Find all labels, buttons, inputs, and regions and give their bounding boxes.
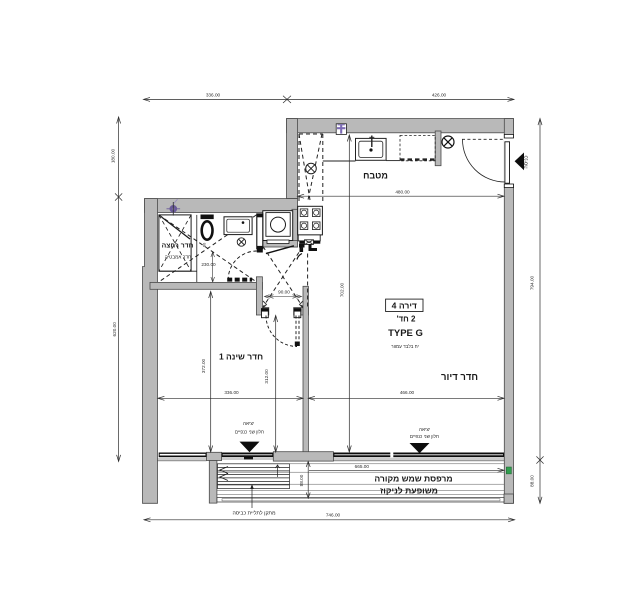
svg-text:2 חד': 2 חד' <box>397 314 416 323</box>
svg-text:480.00: 480.00 <box>395 190 410 195</box>
svg-text:336.00: 336.00 <box>224 390 239 395</box>
svg-text:מתקן לתליית כביסה: מתקן לתליית כביסה <box>232 510 276 517</box>
svg-text:620.00: 620.00 <box>112 322 117 337</box>
svg-text:180.00: 180.00 <box>111 148 116 163</box>
svg-text:מטבח: מטבח <box>363 171 388 181</box>
svg-text:חדר דיור: חדר דיור <box>441 372 478 383</box>
svg-text:יח בלבד עמוור: יח בלבד עמוור <box>391 344 419 349</box>
svg-text:372.00: 372.00 <box>201 358 206 373</box>
svg-text:משופעת לניקוז: משופעת לניקוז <box>380 486 438 496</box>
svg-text:חלון שני כנפיים: חלון שני כנפיים <box>235 430 264 435</box>
svg-text:794.00: 794.00 <box>530 275 535 290</box>
svg-text:יציאה: יציאה <box>419 428 430 433</box>
svg-text:דירה 4: דירה 4 <box>392 301 417 311</box>
svg-text:90.00: 90.00 <box>278 290 290 295</box>
svg-text:312.00: 312.00 <box>264 369 269 384</box>
svg-text:702.00: 702.00 <box>340 282 345 297</box>
svg-text:746.00: 746.00 <box>326 512 341 517</box>
svg-text:מרפסת שמש מקורה: מרפסת שמש מקורה <box>374 474 452 484</box>
svg-text:466.00: 466.00 <box>400 390 415 395</box>
svg-text:665.00: 665.00 <box>355 464 370 469</box>
svg-text:חלון שני כנפיים: חלון שני כנפיים <box>410 434 439 439</box>
svg-text:230.00: 230.00 <box>201 262 216 267</box>
svg-text:חדר אמבטיה: חדר אמבטיה <box>165 256 191 261</box>
svg-text:426.00: 426.00 <box>432 92 447 97</box>
svg-text:80: 80 <box>202 242 207 247</box>
svg-text:חדר שינה 1: חדר שינה 1 <box>219 352 263 362</box>
svg-text:חדר רחצה: חדר רחצה <box>162 243 194 250</box>
svg-text:TYPE G: TYPE G <box>388 328 423 339</box>
svg-text:88.00: 88.00 <box>299 474 304 486</box>
svg-text:336.00: 336.00 <box>206 92 221 97</box>
svg-text:88.00: 88.00 <box>530 475 535 487</box>
svg-text:כניסה: כניסה <box>524 155 530 168</box>
svg-text:יציאה: יציאה <box>243 422 254 427</box>
